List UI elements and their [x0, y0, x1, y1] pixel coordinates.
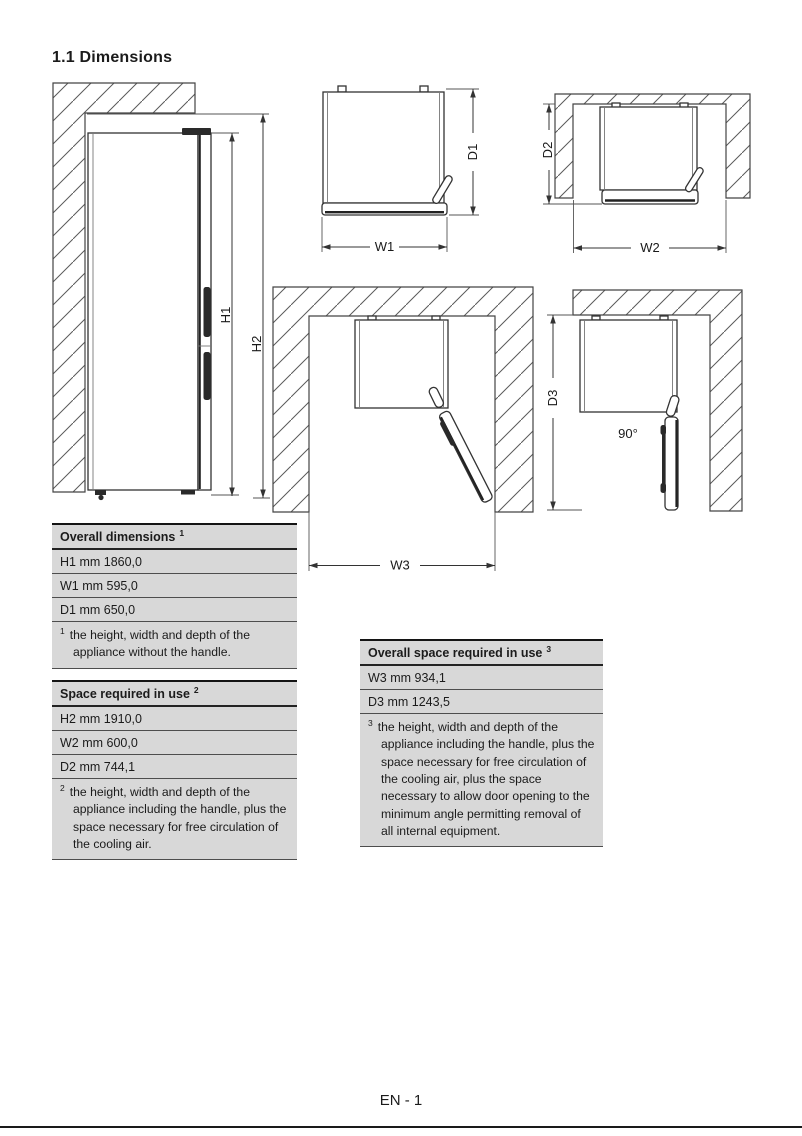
- d3-dimension: D3: [545, 315, 582, 510]
- door-90-diagram: 90° D3: [540, 286, 770, 521]
- footnote-marker: 1: [60, 626, 65, 636]
- table-footnote: 3the height, width and depth of the appl…: [360, 714, 603, 847]
- hinge-tab: [338, 86, 346, 92]
- overall-dimensions-table: Overall dimensions1 H1 mm 1860,0 W1 mm 5…: [52, 523, 297, 669]
- table-row: D2 mm 744,1: [52, 755, 297, 779]
- rear-foot: [181, 490, 195, 495]
- footnote-ref: 3: [546, 644, 551, 654]
- table-header-text: Overall space required in use: [368, 646, 542, 660]
- door-angle-label: 90°: [618, 426, 638, 441]
- w1-dimension: W1: [322, 217, 447, 254]
- table-header: Overall space required in use3: [360, 639, 603, 666]
- door-handle-lower: [204, 352, 211, 400]
- table-header-text: Overall dimensions: [60, 530, 175, 544]
- footnote-text: the height, width and depth of the appli…: [70, 785, 287, 851]
- d1-dimension: D1: [446, 89, 480, 215]
- table-row: H2 mm 1910,0: [52, 707, 297, 731]
- top-view-space-diagram: D2 W2: [535, 84, 765, 264]
- w1-dimension-label: W1: [375, 239, 395, 254]
- fridge-top-view: [580, 316, 677, 412]
- table-row: H1 mm 1860,0: [52, 550, 297, 574]
- table-row: W3 mm 934,1: [360, 666, 603, 690]
- space-required-table: Space required in use2 H2 mm 1910,0 W2 m…: [52, 680, 297, 860]
- door-closed: [602, 190, 698, 204]
- door-open-90: [661, 417, 679, 510]
- door-open-135: [436, 410, 493, 505]
- h1-dimension-label: H1: [218, 307, 233, 324]
- w3-dimension: W3: [309, 512, 495, 573]
- table-row: D1 mm 650,0: [52, 598, 297, 622]
- table-header: Overall dimensions1: [52, 523, 297, 550]
- w3-dimension-label: W3: [390, 558, 410, 573]
- footer-rule: [0, 1126, 802, 1128]
- footer-page-number: EN - 1: [0, 1092, 802, 1109]
- footnote-ref: 1: [179, 528, 184, 538]
- top-view-overall-diagram: D1 W1: [300, 75, 495, 260]
- d1-dimension-label: D1: [465, 144, 480, 161]
- fridge-top-view: [322, 86, 453, 215]
- footnote-marker: 3: [368, 718, 373, 728]
- page-title: 1.1 Dimensions: [52, 49, 172, 67]
- d2-dimension-label: D2: [540, 142, 555, 159]
- table-footnote: 2the height, width and depth of the appl…: [52, 779, 297, 860]
- side-view-diagram: H1 H2: [50, 78, 270, 508]
- h1-dimension: H1: [211, 133, 239, 496]
- overall-space-table: Overall space required in use3 W3 mm 934…: [360, 639, 603, 847]
- w2-dimension: W2: [574, 200, 727, 255]
- table-row: W1 mm 595,0: [52, 574, 297, 598]
- footnote-text: the height, width and depth of the appli…: [378, 720, 595, 838]
- table-header: Space required in use2: [52, 680, 297, 707]
- footnote-marker: 2: [60, 783, 65, 793]
- table-row: D3 mm 1243,5: [360, 690, 603, 714]
- w2-dimension-label: W2: [640, 240, 660, 255]
- h2-dimension-label: H2: [249, 336, 264, 353]
- h2-dimension: H2: [249, 114, 264, 498]
- footnote-text: the height, width and depth of the appli…: [70, 628, 250, 659]
- hinge-cover: [182, 128, 211, 135]
- table-header-text: Space required in use: [60, 687, 190, 701]
- footnote-ref: 2: [194, 685, 199, 695]
- d3-dimension-label: D3: [545, 390, 560, 407]
- front-foot: [95, 490, 106, 495]
- table-row: W2 mm 600,0: [52, 731, 297, 755]
- hinge-tab: [420, 86, 428, 92]
- manual-page: 1.1 Dimensions H1: [0, 0, 802, 1136]
- fridge-top-view: [600, 103, 704, 204]
- table-footnote: 1the height, width and depth of the appl…: [52, 622, 297, 669]
- door-open-diagram: W3: [268, 282, 538, 577]
- door-handle-upper: [204, 287, 211, 337]
- fridge-side: [88, 128, 211, 500]
